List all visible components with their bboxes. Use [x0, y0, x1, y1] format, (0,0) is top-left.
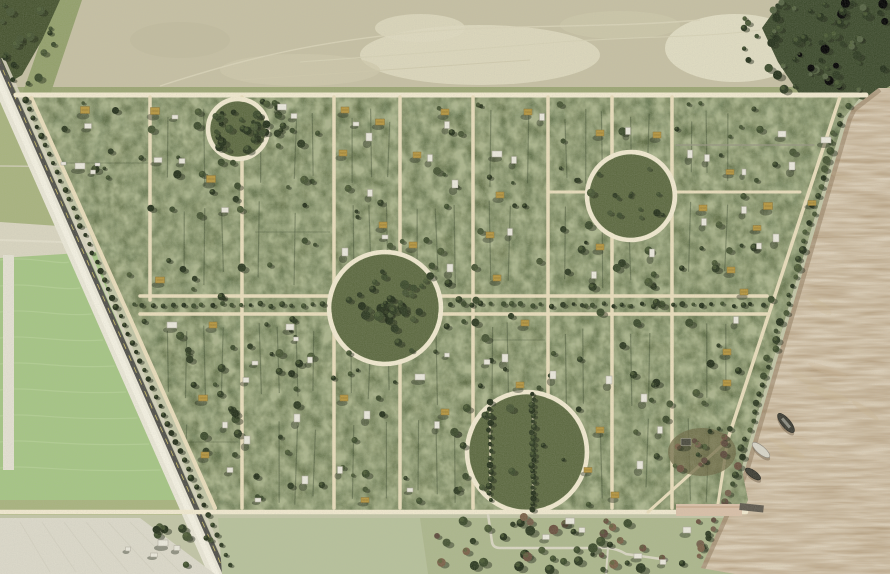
photo-grain-overlay [0, 0, 890, 574]
satellite-map-viewport [0, 0, 890, 574]
satellite-map [0, 0, 890, 574]
